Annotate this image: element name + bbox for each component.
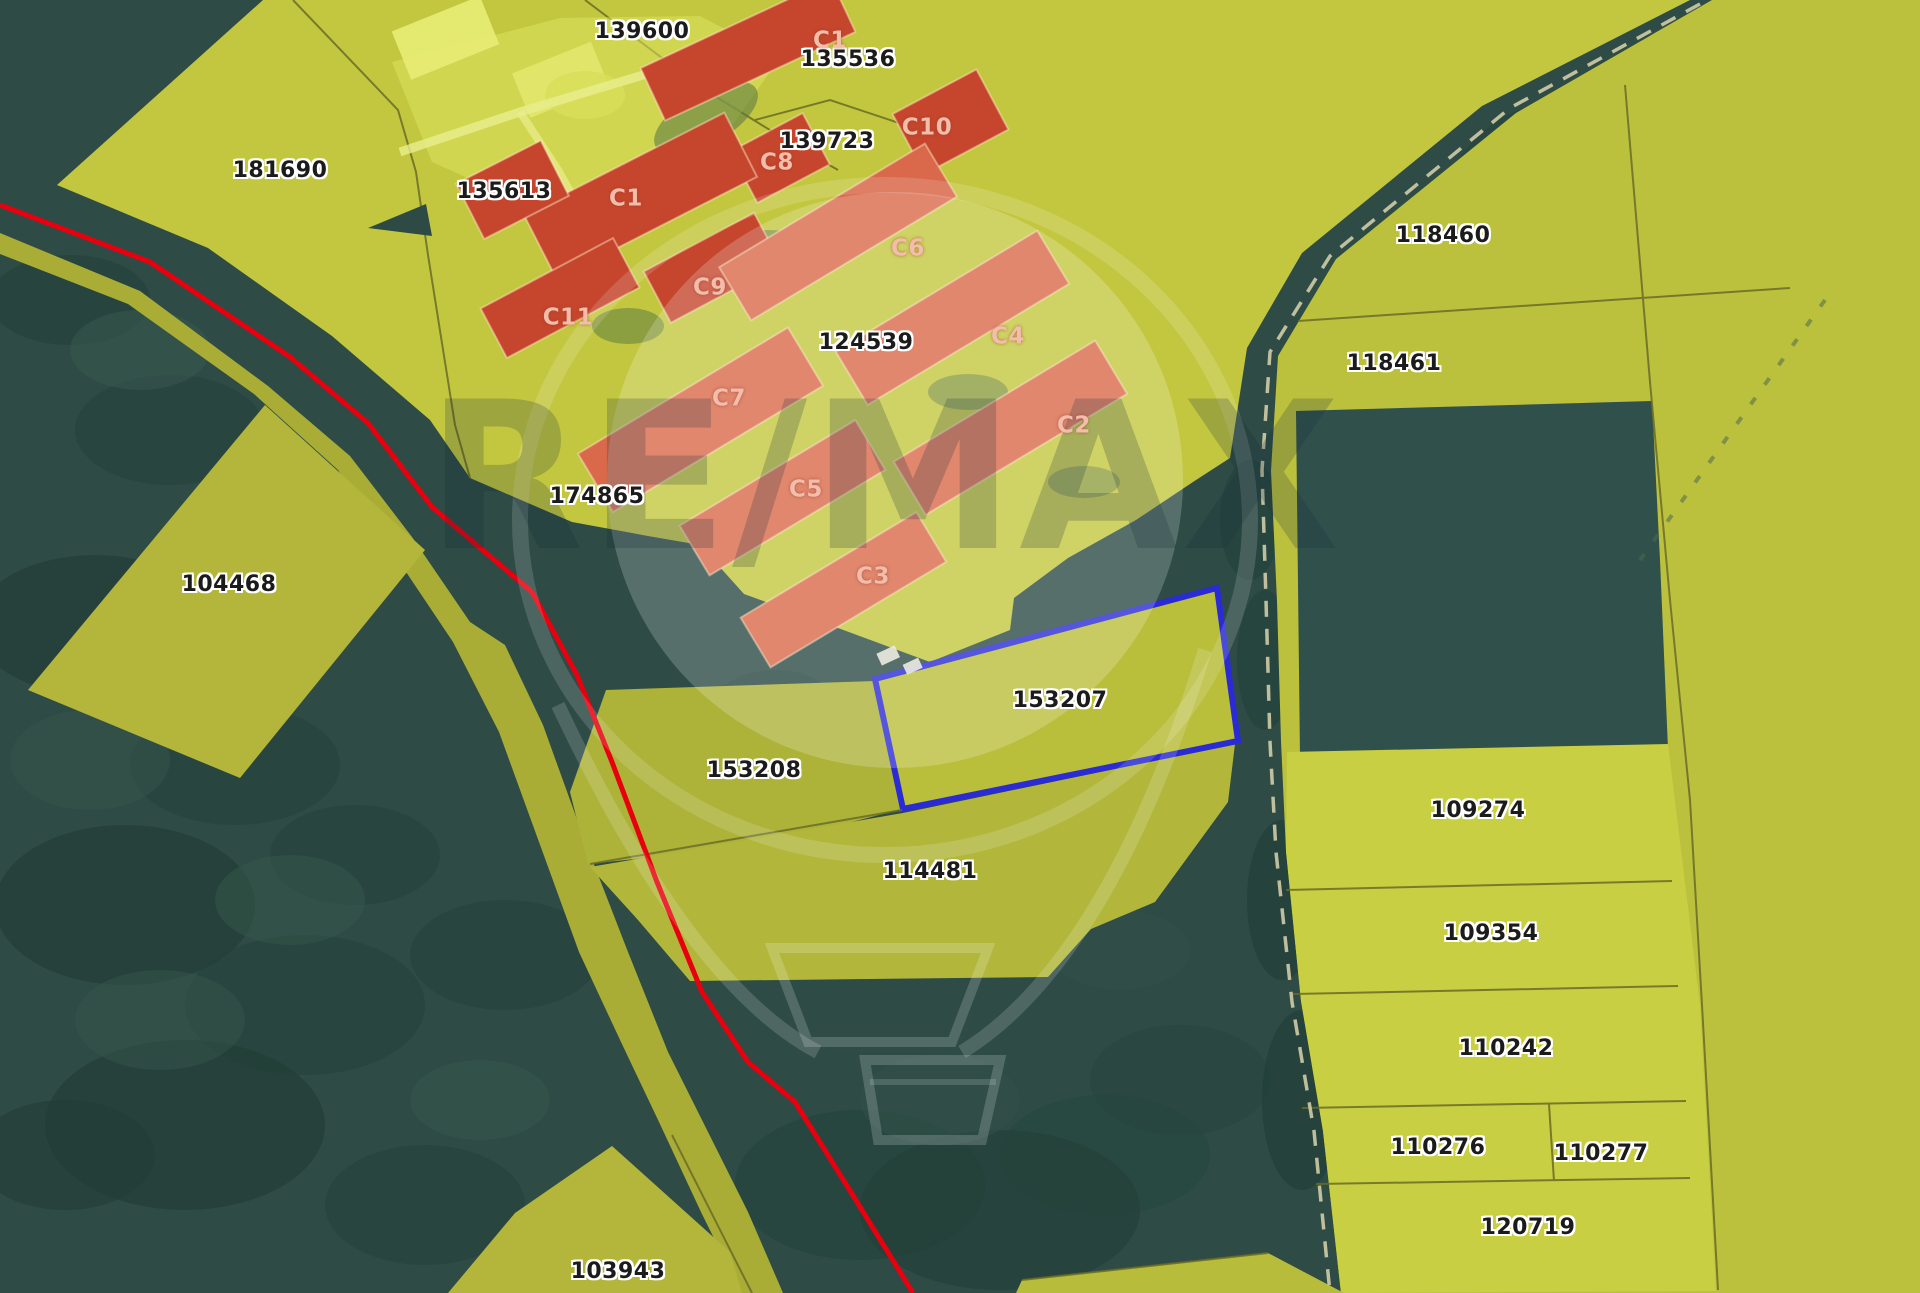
parcel-label-139600: 139600 (595, 21, 690, 43)
parcel-label-109274: 109274 (1431, 800, 1526, 822)
building-label-c4: C4 (991, 326, 1025, 349)
parcel-label-118461: 118461 (1347, 353, 1442, 375)
building-label-c11: C11 (543, 307, 593, 330)
building-label-c1-top: C1 (813, 30, 847, 53)
building-label-c10: C10 (902, 117, 952, 140)
parcel-label-110242: 110242 (1459, 1038, 1554, 1060)
parcel-label-174865: 174865 (550, 486, 645, 508)
parcel-label-103943: 103943 (571, 1261, 666, 1283)
parcel-label-153208: 153208 (707, 760, 802, 782)
building-label-c5: C5 (789, 479, 823, 502)
building-label-c9: C9 (693, 277, 727, 300)
parcel-label-110276: 110276 (1391, 1137, 1486, 1159)
parcel-label-124539: 124539 (819, 332, 914, 354)
parcel-label-153207: 153207 (1013, 690, 1108, 712)
parcel-label-110277: 110277 (1554, 1143, 1649, 1165)
building-label-c1-main: C1 (609, 188, 643, 211)
building-label-c2: C2 (1057, 415, 1091, 438)
parcel-label-135613: 135613 (457, 181, 552, 203)
parcel-label-118460: 118460 (1396, 225, 1491, 247)
map-labels: 1396001355361397231816901356131245391184… (0, 0, 1920, 1293)
building-label-c3: C3 (856, 566, 890, 589)
parcel-label-114481: 114481 (883, 861, 978, 883)
parcel-label-109354: 109354 (1444, 923, 1539, 945)
parcel-label-181690: 181690 (233, 160, 328, 182)
parcel-label-120719: 120719 (1481, 1217, 1576, 1239)
building-label-c8: C8 (760, 152, 794, 175)
parcel-label-104468: 104468 (182, 574, 277, 596)
building-label-c6: C6 (891, 238, 925, 261)
cadastral-map: RE/MAX 139600135536139723181690135613124… (0, 0, 1920, 1293)
building-label-c7: C7 (712, 388, 746, 411)
